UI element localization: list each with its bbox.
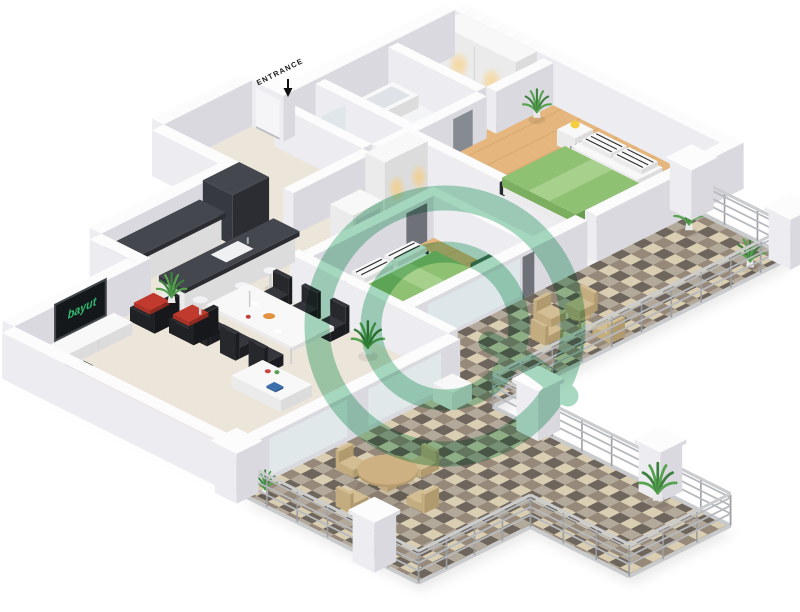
terrace-pillar: [666, 144, 718, 220]
isometric-scene: [2, 4, 800, 591]
terrace-pillar: [348, 497, 400, 573]
floor-plan-illustration: ENTRANCE bayut: [0, 0, 800, 612]
terrace-pillar: [764, 194, 800, 270]
terrace-pillar: [211, 428, 263, 504]
floor-plan-page: ENTRANCE bayut: [0, 0, 800, 612]
